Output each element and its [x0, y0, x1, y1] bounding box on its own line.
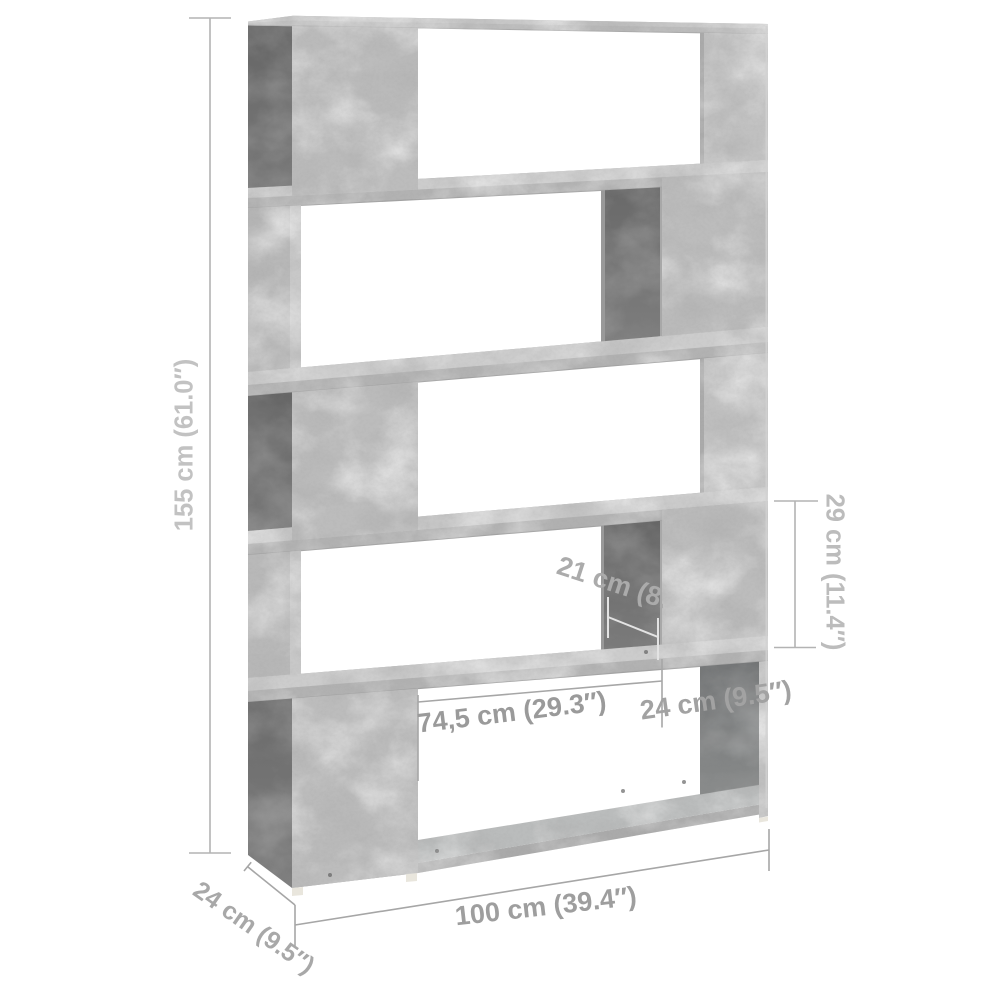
svg-text:29 cm (11.4″): 29 cm (11.4″): [820, 494, 848, 651]
svg-text:155 cm (61.0″): 155 cm (61.0″): [171, 359, 199, 531]
